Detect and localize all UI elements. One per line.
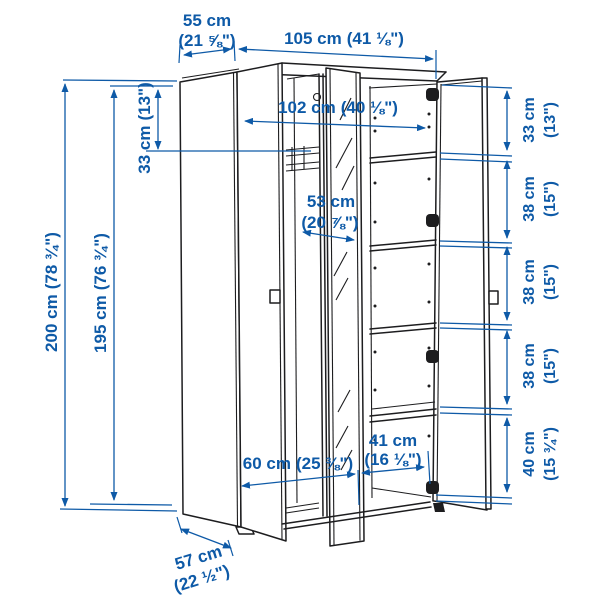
side-panel-face	[180, 72, 241, 527]
dim-label-right-section-2: 38 cm(15")	[521, 259, 559, 304]
floor-top-face	[372, 488, 431, 497]
hinge-icon	[426, 481, 439, 494]
dim-interior-height: 195 cm(76 ¾")	[90, 86, 173, 505]
dim-top-depth: 55 cm (21 ⅝")	[178, 11, 235, 63]
ext-line	[440, 323, 512, 325]
rail-bar	[286, 147, 319, 150]
center-divider	[314, 74, 328, 516]
right-door-open	[433, 78, 498, 512]
interior-floor-edge	[286, 508, 319, 513]
hinge-icon	[426, 214, 439, 227]
shelf-top-edge	[369, 84, 437, 88]
shelf-front	[370, 245, 436, 251]
dim-label-interior-height: 195 cm(76 ¾")	[91, 233, 110, 353]
dim-label-top-section-left: 33 cm(13")	[135, 82, 154, 174]
ext-line	[60, 509, 177, 511]
dim-label-mirror-width-in: (20 ⅞")	[301, 213, 358, 232]
dim-line	[239, 49, 433, 59]
right-front-edge-inner	[437, 84, 441, 502]
ext-line	[436, 495, 512, 498]
rail-bar	[286, 162, 319, 165]
shelf-front	[370, 415, 436, 422]
dim-label-top-depth-in: (21 ⅝")	[178, 31, 235, 50]
shelf-front	[370, 328, 436, 334]
dim-label-right-compartment-cm: 41 cm	[369, 431, 417, 450]
shelf-top-face	[372, 402, 435, 409]
shelf-front	[370, 409, 436, 416]
dim-label-mirror-width-cm: 53 cm	[307, 192, 355, 211]
right-door-handle	[489, 291, 498, 304]
dim-base-depth: 57 cm (22 ½")	[165, 517, 233, 596]
rail-bar	[286, 168, 319, 171]
ext-line	[90, 504, 172, 505]
ext-line	[440, 153, 512, 156]
ext-line	[440, 407, 512, 409]
dim-label-right-section-0: 33 cm(13")	[521, 97, 559, 142]
ext-line	[442, 85, 512, 88]
ext-line	[440, 246, 512, 248]
left-door-handle	[270, 290, 280, 303]
top-right-corner-edge	[437, 72, 446, 81]
interior-back-corner	[294, 78, 297, 503]
dim-label-right-compartment-in: (16 ⅛")	[364, 450, 421, 469]
ext-tick	[177, 517, 182, 533]
clothes-rail	[286, 146, 319, 171]
dim-label-right-section-1: 38 cm(15")	[521, 176, 559, 221]
dim-label-overall-height: 200 cm(78 ¾")	[42, 232, 61, 352]
dim-label-top-depth-cm: 55 cm	[183, 11, 231, 30]
right-front-edge	[433, 81, 437, 501]
top-rear-edge	[282, 63, 446, 72]
dim-label-base-depth: 57 cm (22 ½")	[165, 541, 231, 596]
left-compartment-interior	[286, 74, 319, 513]
wardrobe-dimension-diagram: 200 cm(78 ¾") 195 cm(76 ¾") 33 cm(13") 5…	[0, 0, 600, 600]
interior-floor-edge	[286, 503, 319, 508]
ext-tick	[428, 451, 430, 484]
dim-label-right-section-4: 40 cm(15 ¾")	[521, 427, 559, 481]
right-foot	[433, 503, 445, 512]
ext-line	[440, 159, 512, 162]
hinge-icon	[426, 88, 439, 101]
ext-line	[440, 328, 512, 330]
ext-line	[63, 80, 177, 81]
dim-label-right-section-3: 38 cm(15")	[521, 343, 559, 388]
ext-line	[440, 413, 512, 415]
dim-label-overall-width: 105 cm(41 ⅛")	[284, 29, 404, 48]
hinge-icon	[426, 350, 439, 363]
diagram-canvas: 200 cm(78 ¾") 195 cm(76 ¾") 33 cm(13") 5…	[0, 0, 600, 600]
rail-bar	[286, 153, 319, 156]
divider-edge	[319, 74, 323, 516]
shelf-front	[370, 152, 436, 158]
dim-label-left-compartment: 60 cm(25 ⅜")	[243, 454, 353, 473]
shelf-front	[370, 240, 436, 246]
ext-line	[440, 241, 512, 243]
shelf-front	[370, 157, 436, 163]
wardrobe-drawing	[180, 63, 498, 546]
shelf-front	[370, 323, 436, 329]
